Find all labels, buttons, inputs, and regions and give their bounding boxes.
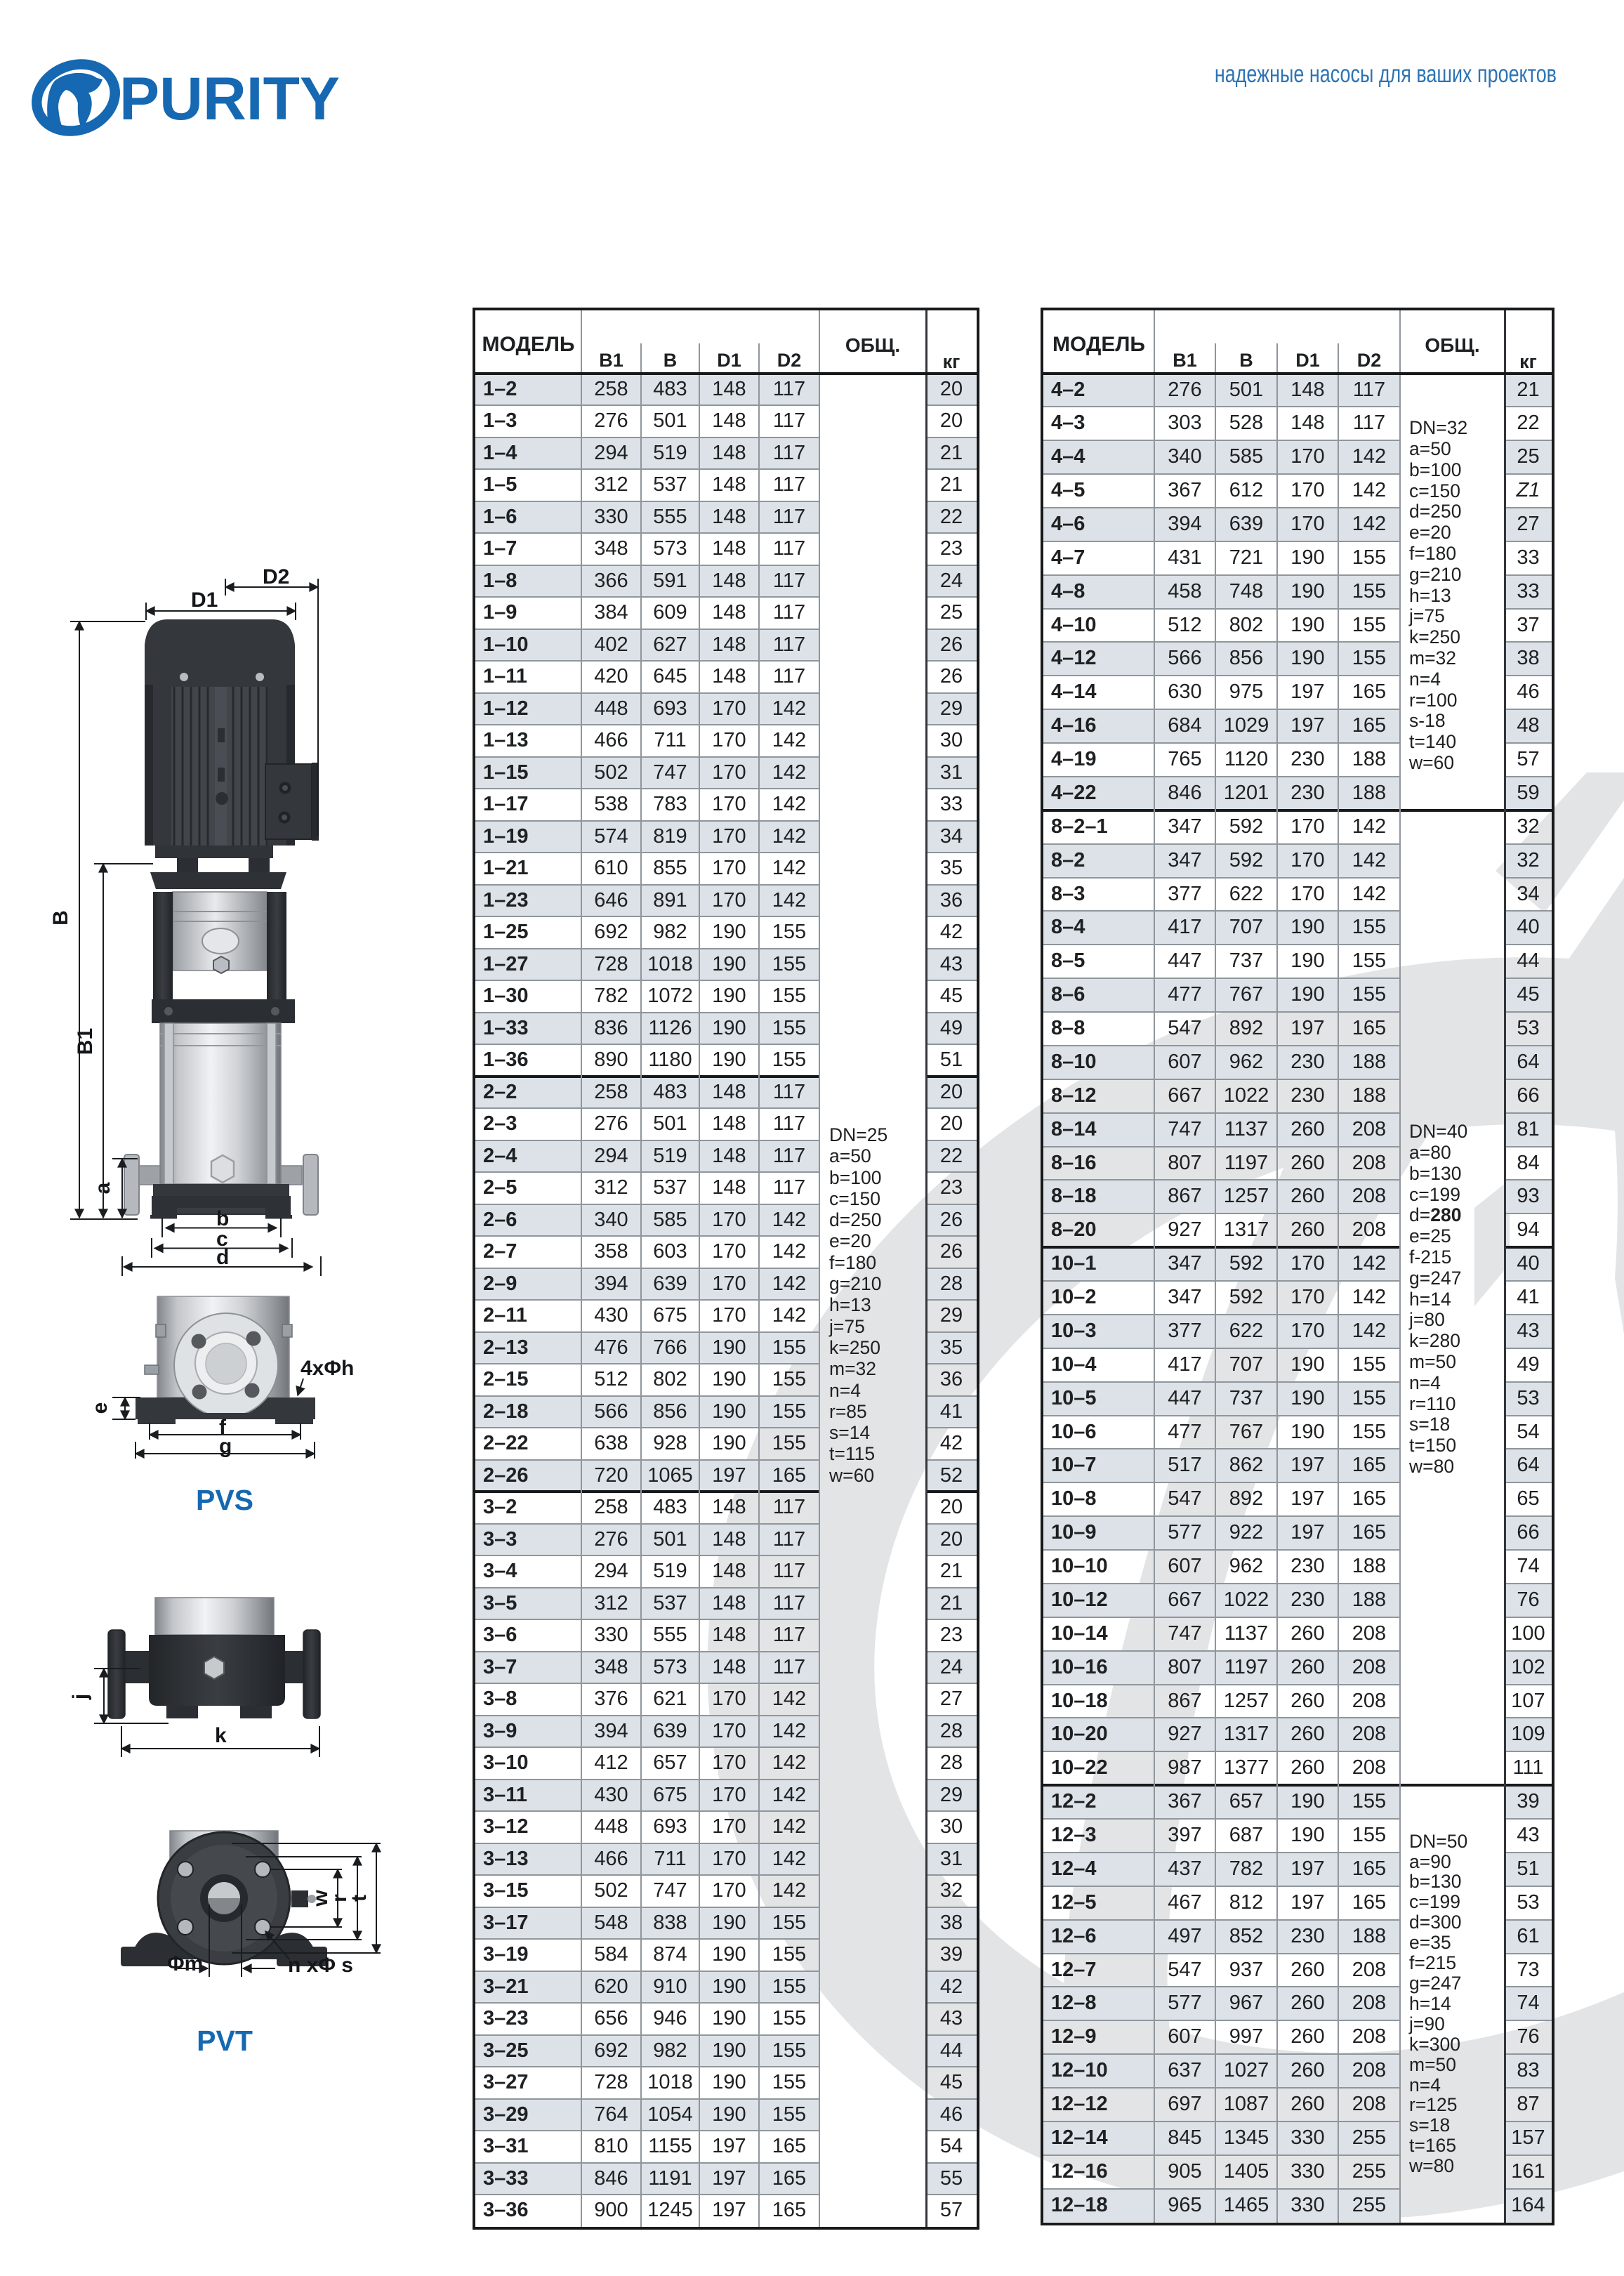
svg-text:t: t <box>348 1895 371 1902</box>
svg-text:d: d <box>216 1246 229 1269</box>
svg-text:B: B <box>49 910 72 926</box>
svg-text:a: a <box>91 1182 114 1194</box>
svg-text:k: k <box>215 1724 227 1747</box>
svg-text:n xΦ s: n xΦ s <box>288 1954 353 1977</box>
svg-text:B1: B1 <box>74 1028 97 1055</box>
svg-text:D2: D2 <box>263 565 289 588</box>
svg-text:j: j <box>69 1694 92 1700</box>
svg-text:e: e <box>88 1402 112 1414</box>
svg-text:g: g <box>219 1435 232 1458</box>
svg-text:D1: D1 <box>191 588 218 612</box>
svg-text:4xΦh: 4xΦh <box>301 1357 354 1380</box>
svg-text:Φm: Φm <box>167 1952 203 1975</box>
